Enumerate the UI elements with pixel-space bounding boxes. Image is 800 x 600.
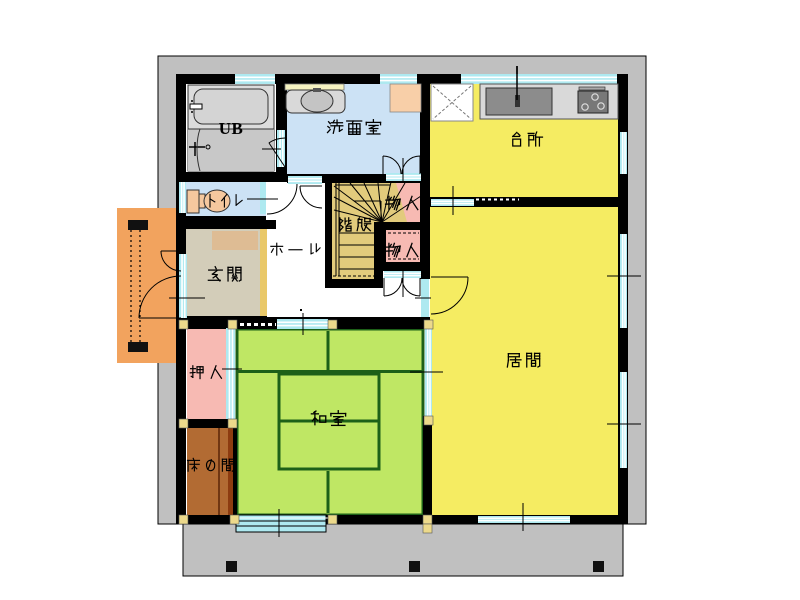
svg-text:UB: UB	[219, 119, 244, 138]
